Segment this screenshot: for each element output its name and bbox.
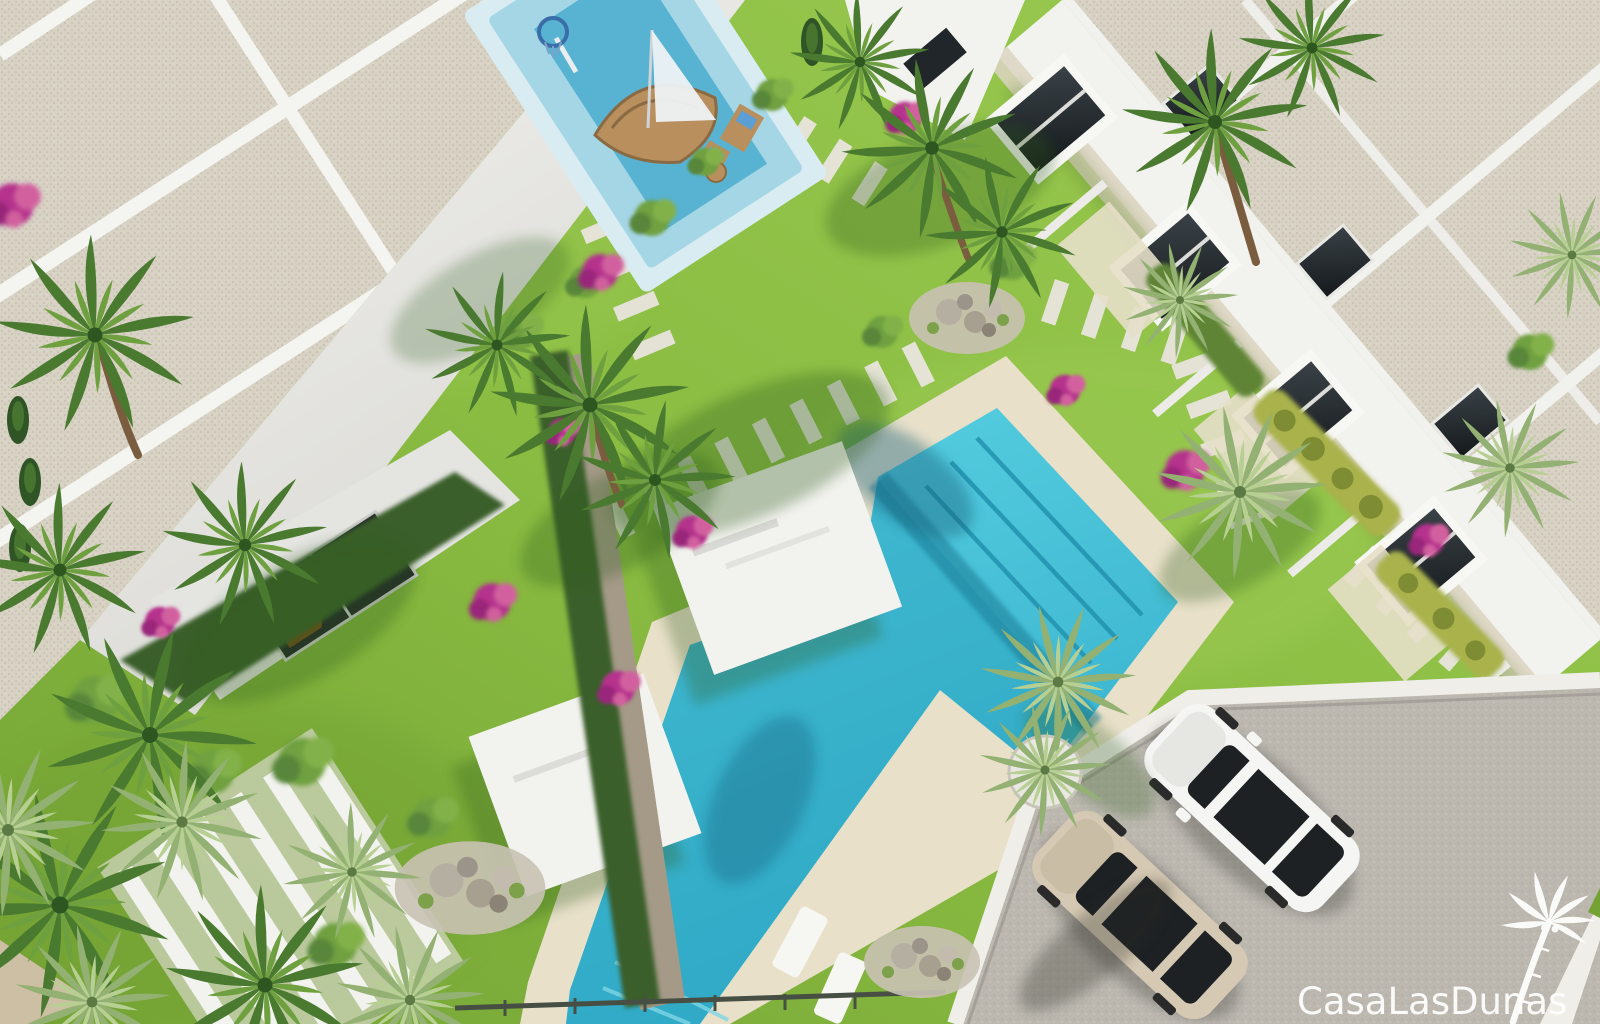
rock-garden bbox=[864, 926, 980, 998]
cypress bbox=[7, 396, 29, 444]
rock-garden bbox=[395, 841, 546, 935]
scene-svg: CasaLasDunas bbox=[0, 0, 1600, 1024]
cypress bbox=[19, 458, 41, 506]
rock-garden bbox=[909, 282, 1025, 354]
aerial-render: CasaLasDunas bbox=[0, 0, 1600, 1024]
